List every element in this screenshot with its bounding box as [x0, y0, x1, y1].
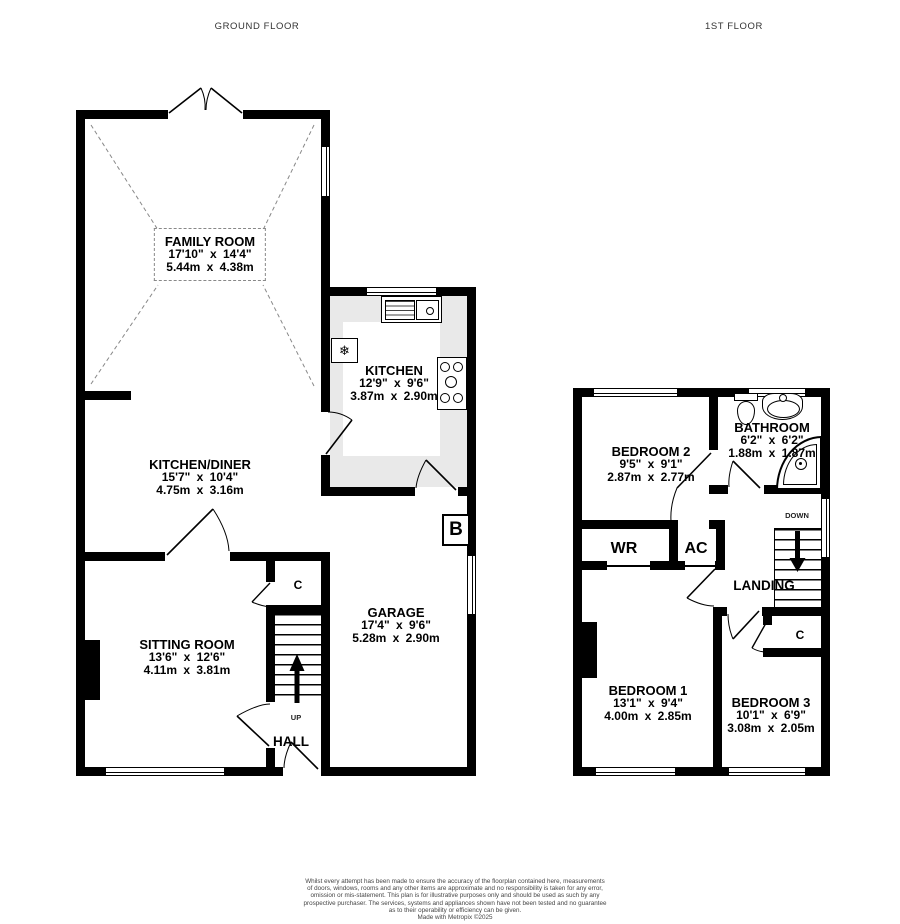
floorplan-canvas: GROUND FLOOR 1ST FLOOR	[0, 0, 900, 924]
room-dim-metric: 4.11m x 3.81m	[139, 664, 234, 677]
door-swing	[169, 88, 201, 113]
chimney-breast	[582, 622, 597, 678]
wall	[321, 197, 330, 296]
stairs-first	[774, 528, 822, 609]
wall	[321, 296, 330, 412]
door-swing	[733, 611, 759, 639]
window	[821, 498, 830, 558]
window	[595, 767, 676, 776]
stairs-ground	[275, 614, 321, 703]
basin-icon	[762, 393, 803, 420]
disclaimer-line: omission or mis-statement. This plan is …	[245, 892, 665, 899]
wall	[713, 607, 722, 767]
wall	[821, 388, 830, 498]
wall	[573, 388, 582, 776]
basin-tap-icon	[779, 394, 787, 402]
room-label-kitchen-diner: KITCHEN/DINER 15'7" x 10'4" 4.75m x 3.16…	[149, 458, 251, 497]
window	[593, 388, 678, 397]
door-arc	[728, 614, 733, 639]
wall	[467, 287, 476, 492]
ground-floor-title: GROUND FLOOR	[215, 21, 300, 32]
wall	[85, 552, 165, 561]
room-dim-metric: 1.88m x 1.87m	[728, 447, 815, 460]
basin-bowl-icon	[767, 400, 800, 418]
cupboard-door-line	[685, 565, 715, 567]
snowflake-glyph: ❄	[339, 343, 350, 358]
wall	[85, 391, 131, 400]
wall	[821, 558, 830, 776]
wall	[715, 561, 725, 570]
disclaimer-line: prospective purchaser. The services, sys…	[245, 900, 665, 907]
stairs-down-label: DOWN	[785, 509, 809, 522]
room-dim-metric: 4.00m x 2.85m	[604, 710, 691, 723]
first-floor-title: 1ST FLOOR	[705, 21, 763, 32]
cupboard-label-first: C	[796, 628, 805, 642]
wall	[321, 552, 330, 776]
room-label-bedroom-1: BEDROOM 1 13'1" x 9'4" 4.00m x 2.85m	[604, 684, 691, 723]
door-swing	[252, 583, 270, 602]
disclaimer-line: Whilst every attempt has been made to en…	[245, 878, 665, 885]
door-swing	[167, 509, 213, 555]
wall	[763, 648, 821, 657]
door-arc	[671, 488, 677, 521]
wall	[321, 767, 476, 776]
wall	[266, 605, 275, 702]
airing-cupboard-label: AC	[684, 542, 707, 555]
wall	[467, 615, 476, 776]
disclaimer-line: as to their operability or efficiency ca…	[245, 907, 665, 914]
wall	[321, 110, 330, 146]
window	[366, 287, 437, 296]
room-dim-metric: 3.08m x 2.05m	[727, 722, 814, 735]
wall	[266, 552, 275, 582]
toilet-cistern-icon	[734, 393, 758, 401]
disclaimer-credit: Made with Metropix ©2025	[245, 914, 665, 921]
wall	[650, 561, 685, 570]
wall	[573, 520, 669, 529]
door-arc	[206, 88, 211, 110]
room-label-garage: GARAGE 17'4" x 9'6" 5.28m x 2.90m	[352, 606, 439, 645]
door-arc	[687, 598, 714, 606]
room-dim-metric: 5.28m x 2.90m	[352, 632, 439, 645]
wall	[76, 110, 168, 119]
window	[105, 767, 225, 776]
boiler-label: B	[449, 519, 463, 540]
window	[728, 767, 806, 776]
room-label-bedroom-3: BEDROOM 3 10'1" x 6'9" 3.08m x 2.05m	[727, 696, 814, 735]
room-dim-metric: 5.44m x 4.38m	[165, 261, 255, 274]
chimney-breast	[85, 640, 100, 700]
wall	[243, 110, 330, 119]
wall	[573, 561, 607, 570]
door-arc	[213, 509, 229, 551]
wall	[676, 767, 728, 776]
wall	[76, 767, 105, 776]
sink-plug-icon	[426, 307, 434, 315]
door-swing	[237, 716, 269, 746]
freezer-icon: ❄	[331, 338, 358, 363]
room-label-family-room: FAMILY ROOM 17'10" x 14'4" 5.44m x 4.38m	[154, 228, 266, 281]
wall	[573, 388, 593, 397]
cupboard-label-ground: C	[294, 578, 303, 592]
stairs-up-label: UP	[291, 711, 301, 724]
wall	[806, 767, 830, 776]
wall	[76, 110, 85, 776]
room-label-bathroom: BATHROOM 6'2" x 6'2" 1.88m x 1.87m	[728, 421, 815, 460]
room-label-kitchen: KITCHEN 12'9" x 9'6" 3.87m x 2.90m	[350, 364, 437, 403]
room-label-sitting-room: SITTING ROOM 13'6" x 12'6" 4.11m x 3.81m	[139, 638, 234, 677]
boiler-box: B	[442, 514, 470, 546]
door-swing	[687, 569, 715, 598]
hob-icon	[437, 357, 467, 410]
window	[321, 146, 330, 197]
wall	[330, 487, 415, 496]
wall	[230, 552, 330, 561]
room-label-landing: LANDING	[733, 579, 795, 592]
wall	[763, 607, 772, 625]
wall	[321, 287, 366, 296]
window	[467, 555, 476, 615]
sink-drainer-icon	[385, 300, 415, 320]
wall	[709, 485, 728, 494]
door-swing	[211, 88, 242, 113]
wardrobe-label: WR	[611, 542, 638, 555]
cupboard-door-line	[607, 565, 650, 567]
wall	[225, 767, 283, 776]
room-label-bedroom-2: BEDROOM 2 9'5" x 9'1" 2.87m x 2.77m	[607, 445, 694, 484]
disclaimer: Whilst every attempt has been made to en…	[245, 878, 665, 921]
door-swing	[752, 623, 766, 648]
door-arc	[729, 461, 733, 487]
wall	[709, 388, 718, 450]
room-dim-metric: 4.75m x 3.16m	[149, 484, 251, 497]
room-dim-metric: 2.87m x 2.77m	[607, 471, 694, 484]
sink-counter	[381, 296, 442, 323]
wall	[573, 767, 595, 776]
door-swing	[733, 461, 760, 488]
room-label-hall: HALL	[273, 735, 309, 748]
door-arc	[237, 704, 270, 716]
door-arc	[201, 88, 205, 110]
room-dim-metric: 3.87m x 2.90m	[350, 390, 437, 403]
wall	[321, 455, 330, 496]
wall	[806, 388, 830, 397]
disclaimer-line: of doors, windows, rooms and any other i…	[245, 885, 665, 892]
sink-basin-icon	[416, 300, 439, 320]
